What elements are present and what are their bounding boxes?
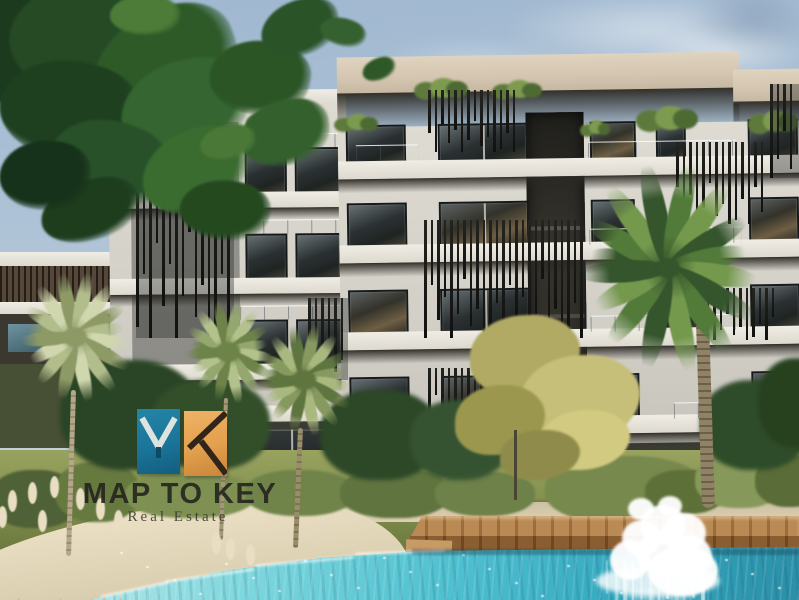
fountain-reflection bbox=[626, 588, 696, 600]
louver-rod bbox=[541, 220, 544, 279]
deck-water-shadow bbox=[412, 549, 799, 555]
glass-balustrade bbox=[356, 144, 418, 161]
louver-rod bbox=[450, 220, 453, 338]
water-sparkle bbox=[120, 552, 123, 554]
louver-rod bbox=[709, 142, 712, 183]
louver-rod bbox=[777, 84, 780, 159]
louver-rod bbox=[535, 220, 538, 314]
louver-rod bbox=[748, 142, 751, 224]
louver-rod bbox=[759, 288, 762, 324]
louver-rod bbox=[509, 220, 512, 285]
grass-plume bbox=[246, 544, 255, 566]
window bbox=[245, 233, 287, 283]
louver-rod bbox=[515, 220, 518, 320]
louver-rod bbox=[461, 90, 464, 152]
louver-rod bbox=[444, 220, 447, 297]
palm-crown-center bbox=[63, 327, 87, 347]
louver-rod bbox=[567, 220, 570, 332]
louver-rod bbox=[474, 90, 477, 121]
louver-rod bbox=[341, 298, 344, 360]
background-building-fascia bbox=[0, 252, 122, 266]
louver-rod bbox=[463, 220, 466, 279]
louver-rod bbox=[561, 220, 564, 338]
water-sparkle bbox=[567, 565, 570, 567]
logo-m-mark bbox=[137, 409, 180, 474]
rooftop-plants bbox=[636, 106, 698, 130]
louver-rod bbox=[741, 142, 744, 199]
palm-crown-center bbox=[656, 258, 680, 278]
fountain-spray bbox=[628, 498, 654, 520]
louver-rod bbox=[754, 142, 757, 187]
louver-rod bbox=[467, 90, 470, 140]
water-sparkle bbox=[330, 574, 333, 576]
grass-plume bbox=[28, 482, 37, 504]
water-sparkle bbox=[146, 566, 149, 568]
louver-screen bbox=[770, 84, 799, 178]
louver-rod bbox=[470, 220, 473, 326]
grass-plume bbox=[226, 538, 235, 560]
louver-rod bbox=[772, 288, 775, 317]
plant-tuft bbox=[360, 117, 378, 131]
louver-rod bbox=[483, 220, 486, 338]
louver-rod bbox=[457, 220, 460, 314]
plant-tuft bbox=[522, 83, 542, 98]
louver-screen bbox=[428, 90, 522, 152]
wooden-deck bbox=[410, 516, 799, 538]
logo-k-mark bbox=[184, 411, 227, 476]
louver-rod bbox=[454, 90, 457, 130]
louver-rod bbox=[489, 220, 492, 332]
louver-rod bbox=[448, 90, 451, 143]
louver-rod bbox=[761, 142, 764, 212]
louver-rod bbox=[424, 220, 427, 338]
louver-rod bbox=[441, 90, 444, 124]
louver-rod bbox=[506, 90, 509, 133]
grass-plume bbox=[38, 510, 47, 532]
brand-name-text: MAP TO KEY bbox=[58, 478, 302, 511]
water-sparkle bbox=[751, 573, 754, 575]
brand-subtitle-text: Real Estate bbox=[58, 509, 298, 526]
grass-plume bbox=[212, 532, 221, 554]
plant-tuft bbox=[598, 123, 610, 135]
louver-rod bbox=[431, 220, 434, 285]
louver-rod bbox=[548, 220, 551, 326]
louver-rod bbox=[790, 84, 793, 169]
palm-crown-center bbox=[216, 342, 240, 362]
louver-rod bbox=[487, 90, 490, 137]
louver-rod bbox=[493, 90, 496, 152]
water-sparkle bbox=[488, 568, 491, 570]
water-sparkle bbox=[515, 582, 518, 584]
plant-tuft bbox=[673, 109, 698, 129]
water-sparkle bbox=[778, 587, 781, 589]
louver-rod bbox=[765, 288, 768, 340]
louver-rod bbox=[496, 220, 499, 303]
rooftop-plants bbox=[580, 120, 610, 134]
window bbox=[295, 233, 341, 283]
louver-rod bbox=[500, 90, 503, 149]
poolside-apartment-render: MAP TO KEY Real Estate bbox=[0, 0, 799, 600]
louver-rod bbox=[428, 90, 431, 133]
louver-rod bbox=[435, 368, 438, 395]
water-sparkle bbox=[252, 577, 255, 579]
rooftop-plants bbox=[334, 114, 378, 130]
grass-plume bbox=[8, 490, 17, 512]
louver-rod bbox=[522, 220, 525, 297]
louver-rod bbox=[476, 220, 479, 309]
louver-rod bbox=[783, 84, 786, 131]
water-sparkle bbox=[225, 563, 228, 565]
louver-rod bbox=[735, 142, 738, 220]
louver-rod bbox=[770, 84, 773, 178]
louver-rod bbox=[328, 298, 331, 339]
water-sparkle bbox=[383, 557, 386, 559]
yellow-tree-trunk bbox=[514, 430, 517, 500]
louver-rod bbox=[554, 220, 557, 309]
louver-rod bbox=[437, 220, 440, 320]
fountain-spray bbox=[658, 496, 682, 516]
louver-rod bbox=[574, 220, 577, 303]
water-sparkle bbox=[409, 571, 412, 573]
louver-rod bbox=[513, 90, 516, 152]
louver-rod bbox=[480, 90, 483, 146]
palm-crown-center bbox=[292, 370, 316, 390]
louver-rod bbox=[435, 90, 438, 152]
